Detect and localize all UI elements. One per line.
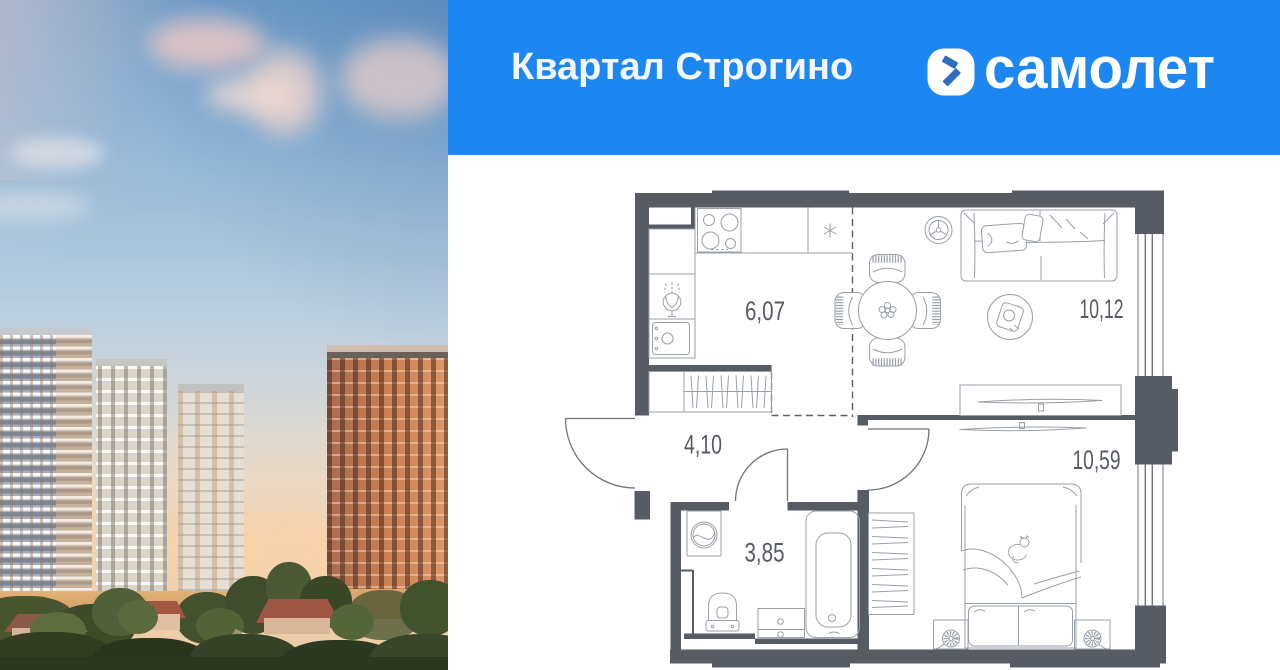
svg-text:3,85: 3,85 bbox=[745, 538, 785, 568]
svg-text:10,12: 10,12 bbox=[1080, 294, 1124, 324]
svg-text:4,10: 4,10 bbox=[684, 430, 722, 460]
svg-text:10,59: 10,59 bbox=[1073, 445, 1121, 475]
svg-text:6,07: 6,07 bbox=[745, 296, 785, 326]
